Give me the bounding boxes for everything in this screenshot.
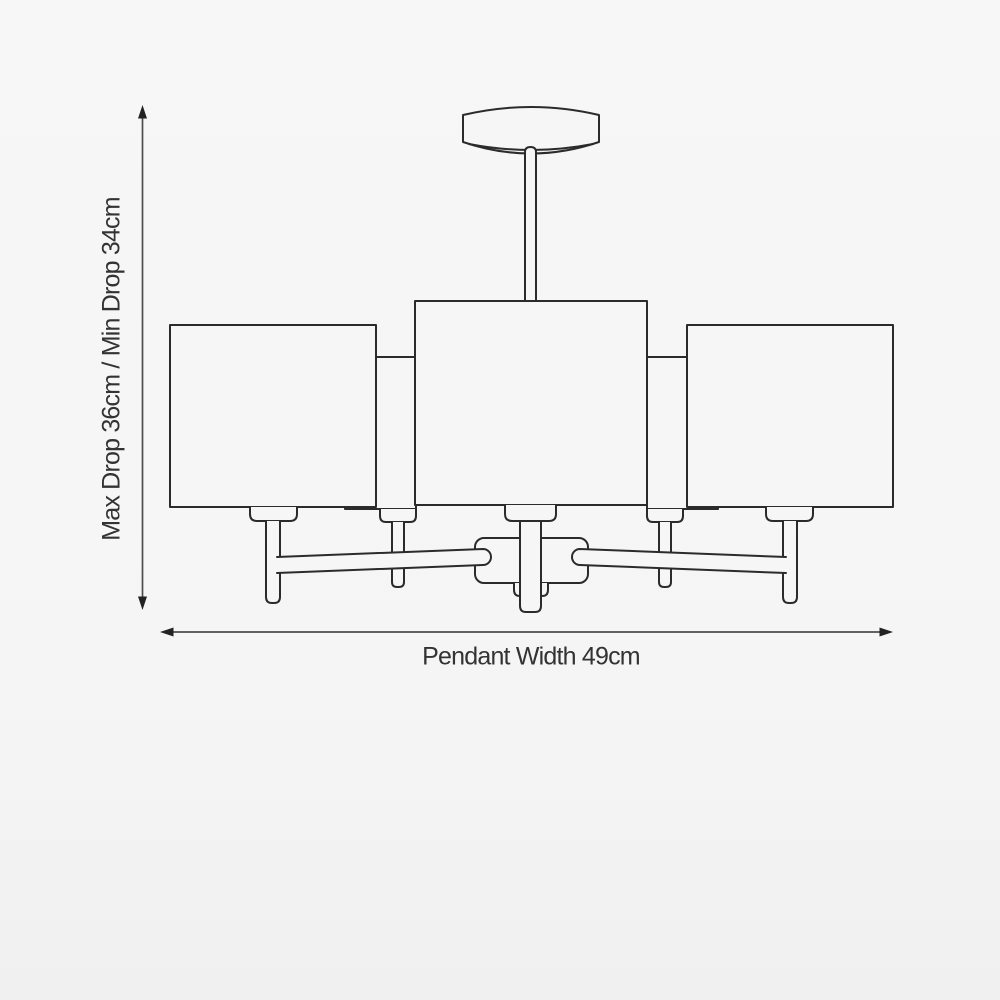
- arrow-up-icon: [138, 105, 147, 119]
- vertical-dimension-line: [138, 105, 147, 610]
- arrow-down-icon: [138, 597, 147, 611]
- width-dimension-label: Pendant Width 49cm: [422, 643, 640, 672]
- shade-outer-left: [170, 325, 376, 507]
- product-dimension-diagram: Max Drop 36cm / Min Drop 34cm Pendant Wi…: [0, 0, 1000, 1000]
- horizontal-dimension-line: [160, 628, 893, 637]
- drop-rod: [525, 147, 536, 301]
- drop-dimension-label: Max Drop 36cm / Min Drop 34cm: [98, 197, 127, 541]
- centre-candle-cup: [505, 505, 556, 521]
- chandelier-line-drawing: [0, 0, 1000, 1000]
- arrow-right-icon: [880, 628, 894, 637]
- shade-front-centre: [415, 301, 647, 505]
- arrow-left-icon: [160, 628, 174, 637]
- central-stem: [520, 522, 541, 612]
- shade-outer-right: [687, 325, 893, 507]
